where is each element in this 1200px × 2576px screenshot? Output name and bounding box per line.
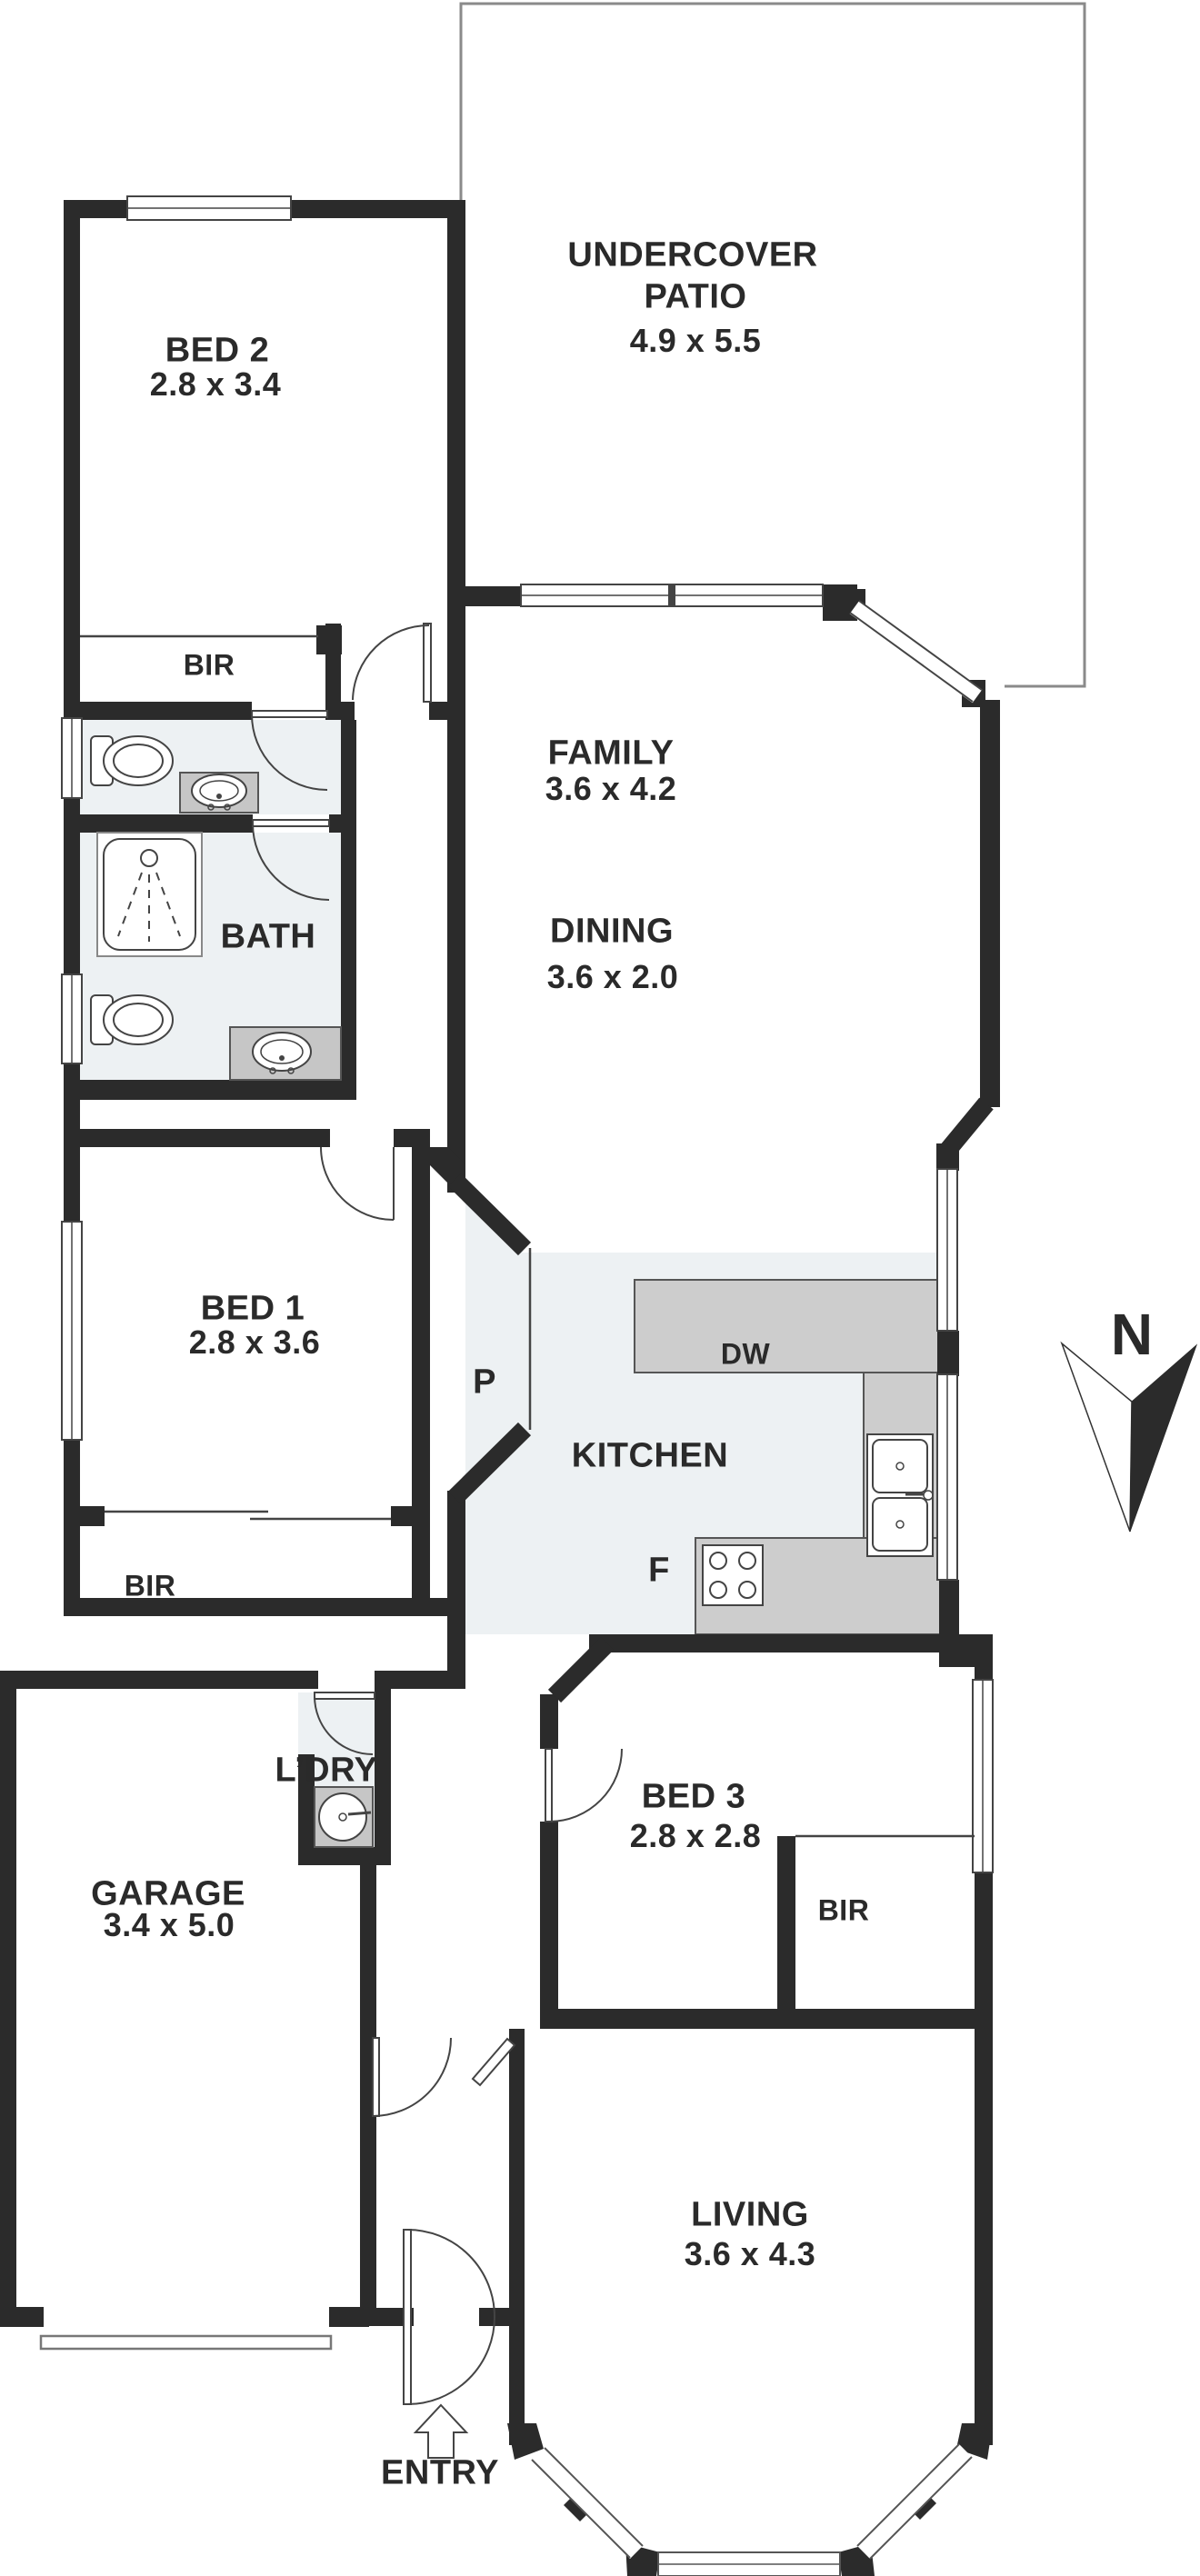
family-patio-glazing <box>521 584 823 606</box>
entry-label: ENTRY <box>381 2454 499 2493</box>
laundry-tub-icon <box>315 1787 373 1847</box>
bed2-dims-label: 2.8 x 3.4 <box>150 365 282 404</box>
patio-label-line1: UNDERCOVER <box>567 236 817 275</box>
pantry-label: P <box>473 1363 496 1403</box>
toilet-icon-bath <box>91 995 173 1044</box>
stove-icon <box>703 1545 763 1605</box>
basin-icon-bath <box>230 1027 341 1080</box>
fridge-label: F <box>648 1552 670 1591</box>
dishwasher-label: DW <box>721 1338 770 1372</box>
dining-label: DINING <box>550 913 674 952</box>
kitchen-sink-icon <box>867 1434 933 1556</box>
patio-dims-label: 4.9 x 5.5 <box>630 322 762 360</box>
basin-icon-wc <box>180 773 258 813</box>
family-label: FAMILY <box>548 734 675 774</box>
bir-bed1-label: BIR <box>125 1570 176 1603</box>
compass-north-label: N <box>1111 1301 1153 1368</box>
kitchen-label: KITCHEN <box>572 1437 728 1476</box>
toilet-icon-wc <box>91 736 173 785</box>
counter-top-run <box>635 1280 938 1373</box>
bir-bed3-label: BIR <box>818 1894 870 1928</box>
floor-plan-canvas: UNDERCOVER PATIO 4.9 x 5.5 BED 2 2.8 x 3… <box>0 0 1200 2576</box>
living-bay-windows <box>532 2444 972 2576</box>
living-label: LIVING <box>691 2196 809 2235</box>
shower-icon <box>97 833 202 956</box>
garage-door-panel <box>41 2336 331 2349</box>
bed1-dims-label: 2.8 x 3.6 <box>189 1323 321 1362</box>
bed3-dims-label: 2.8 x 2.8 <box>630 1817 762 1855</box>
bed3-label: BED 3 <box>642 1778 745 1817</box>
bir-bed2-label: BIR <box>184 649 235 683</box>
living-dims-label: 3.6 x 4.3 <box>685 2235 816 2273</box>
laundry-label: L’DRY <box>275 1752 378 1791</box>
north-arrow-icon <box>1062 1343 1196 1532</box>
garage-dims-label: 3.4 x 5.0 <box>104 1906 235 1944</box>
bed2-window <box>127 196 291 220</box>
bath-label: BATH <box>221 918 316 957</box>
dining-dims-label: 3.6 x 2.0 <box>547 958 679 996</box>
patio-label-line2: PATIO <box>645 278 747 317</box>
entry-arrow-icon <box>415 2405 466 2458</box>
family-bay-window <box>850 601 982 702</box>
family-dims-label: 3.6 x 4.2 <box>545 770 677 808</box>
